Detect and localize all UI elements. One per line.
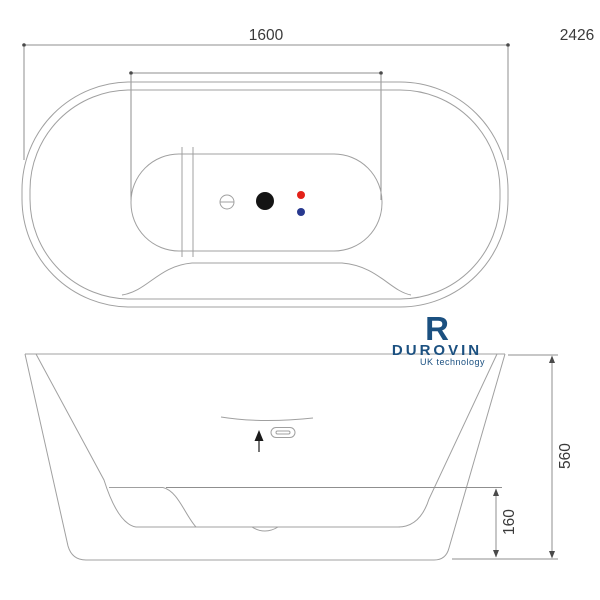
drawing-svg: 1600 2426 — [0, 0, 600, 600]
backrest-curve — [122, 263, 411, 295]
up-arrow-icon — [255, 430, 264, 452]
dim-end-dot — [129, 71, 133, 75]
dimension-inner — [129, 71, 383, 200]
dimension-160: 160 — [166, 488, 518, 558]
dim-end-dot — [506, 43, 510, 47]
side-view-inner-bowl-right — [398, 354, 497, 527]
side-view-inner-bowl-left — [36, 354, 400, 527]
bathtub-technical-drawing: 1600 2426 — [0, 0, 600, 600]
waterline-curve — [221, 417, 313, 421]
overflow-cover-icon — [271, 428, 295, 438]
dimension-label-560: 560 — [557, 443, 574, 469]
dimension-label-160: 160 — [501, 509, 518, 535]
sheet-number: 2426 — [560, 27, 594, 44]
dim-end-dot — [379, 71, 383, 75]
dim-end-dot — [22, 43, 26, 47]
durovin-logo: R DUROVIN UK technology — [392, 310, 485, 367]
brand-tagline: UK technology — [420, 357, 485, 367]
side-view: 560 160 — [25, 354, 574, 560]
cold-water-dot-icon — [297, 208, 305, 216]
seat-step-curve — [163, 488, 196, 528]
top-view: 1600 2426 — [22, 27, 594, 307]
dimension-label-1600: 1600 — [249, 27, 284, 44]
drain-bump — [252, 527, 278, 531]
drain-icon — [256, 192, 274, 210]
overflow-symbol-icon — [220, 195, 234, 209]
dimension-1600: 1600 — [22, 27, 510, 160]
hot-water-dot-icon — [297, 191, 305, 199]
side-view-outer-shell — [25, 354, 505, 560]
